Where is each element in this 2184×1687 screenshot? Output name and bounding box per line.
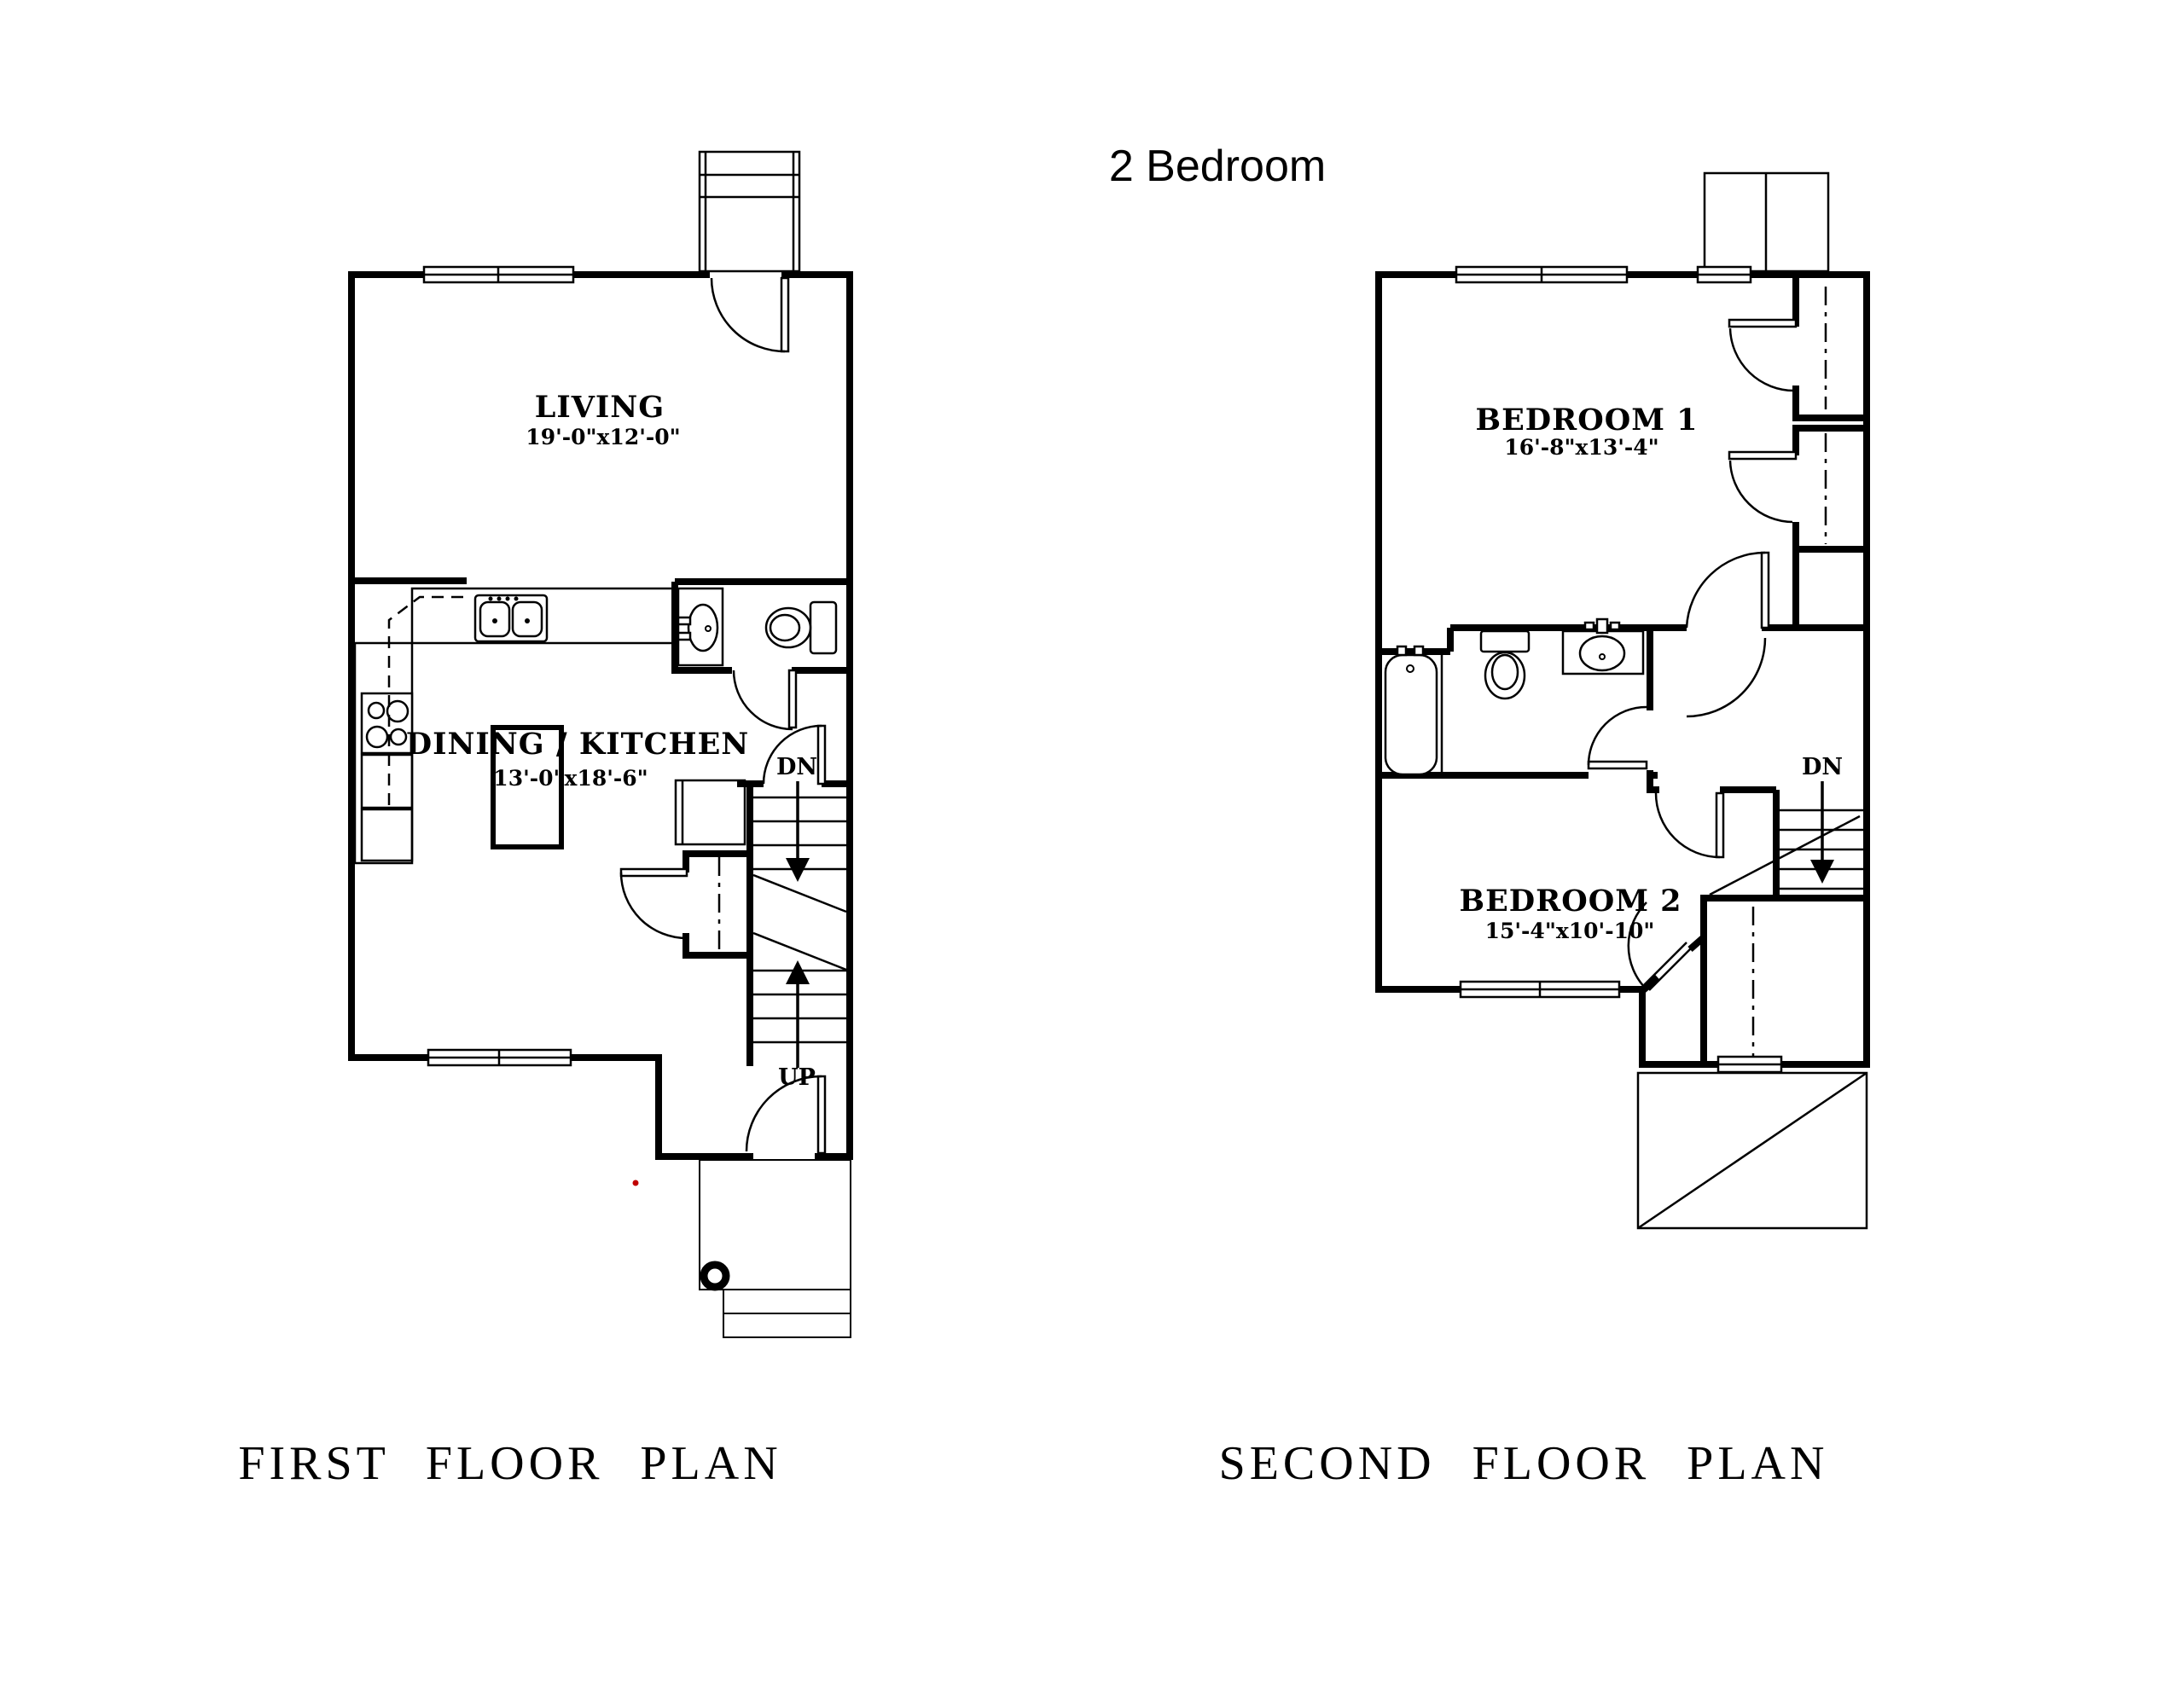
bedroom1-door-leaf: [1762, 553, 1769, 628]
base-cabinet: [362, 809, 412, 861]
roof-over-entry: [1705, 173, 1828, 271]
pantry-cabinet: [676, 780, 745, 844]
living-room-dims: 19'-0"x12'-0": [526, 425, 680, 449]
bedroom1-dims: 16'-8"x13'-4": [1504, 435, 1658, 460]
bedroom2-dims: 15'-4"x10'-10": [1485, 919, 1655, 943]
powder-door-leaf: [789, 670, 796, 728]
living-room-label: LIVING: [535, 390, 665, 425]
first-floor-title: FIRST FLOOR PLAN: [238, 1437, 781, 1490]
bathtub-icon: [1385, 646, 1437, 774]
first-floor-windows: [424, 267, 573, 1065]
stair-down-arrow: [786, 781, 810, 882]
front-stoop: [700, 152, 799, 271]
hall-door-leaf: [818, 726, 825, 784]
closet-rods: [1753, 287, 1826, 1058]
closet-door-leaf: [621, 869, 687, 876]
sheet-title: 2 Bedroom: [1109, 142, 1326, 191]
bathroom-door-leaf: [1589, 762, 1647, 768]
bedroom1-door-swing: [1687, 553, 1765, 628]
rear-porch: [700, 1160, 851, 1337]
closet-door-swing: [621, 872, 687, 938]
refrigerator-icon: [362, 755, 412, 808]
second-floor-bathroom: [1385, 619, 1643, 774]
range-icon: [362, 693, 412, 753]
closet1-door-leaf: [1729, 320, 1796, 327]
stair-up-arrow: [786, 960, 810, 1068]
closet1-door-swing: [1730, 328, 1794, 391]
first-floor-interior-walls: [348, 581, 850, 1066]
first-floor-plan: DN UP LIVING 19'-0"x12'-0" DINING / KITC…: [238, 152, 853, 1490]
stair-treads: [753, 797, 846, 1042]
second-floor-title: SECOND FLOOR PLAN: [1219, 1437, 1829, 1490]
powder-room: [678, 588, 836, 665]
front-door-leaf: [781, 278, 788, 351]
first-floor-stairs: DN UP: [753, 754, 846, 1091]
hall-door-swing: [1687, 638, 1765, 716]
stair-dn-label: DN: [1802, 754, 1843, 780]
porch-column: [704, 1265, 726, 1287]
kitchen-sink-icon: [475, 595, 547, 641]
front-door-swing: [712, 278, 785, 351]
rear-door-leaf: [818, 1076, 825, 1153]
bedroom2-hall-door-swing: [1656, 793, 1720, 857]
roof-over-rear-porch: [1638, 1073, 1867, 1228]
stair-dn-label: DN: [776, 754, 817, 780]
powder-door-swing: [734, 670, 793, 729]
bedroom2-label: BEDROOM 2: [1460, 884, 1682, 919]
second-floor-stairs: DN: [1710, 754, 1867, 895]
bathroom-door-swing: [1589, 707, 1647, 765]
closet2-door-leaf: [1729, 452, 1796, 459]
bedroom1-label: BEDROOM 1: [1476, 403, 1699, 438]
dining-kitchen-label: DINING / KITCHEN: [406, 727, 750, 762]
floor-plan-sheet: 2 Bedroom: [0, 0, 2184, 1687]
closet2-door-swing: [1730, 461, 1792, 522]
second-floor-interior-walls: [1375, 275, 1870, 1064]
toilet-icon: [766, 602, 836, 653]
stair-up-label: UP: [778, 1064, 816, 1091]
red-marker-dot: [633, 1180, 639, 1186]
stair-break-lines: [753, 875, 846, 970]
bathroom-sink-icon: [678, 588, 723, 665]
toilet-icon: [1481, 631, 1529, 699]
dining-kitchen-dims: 13'-0"x18'-6": [493, 766, 648, 791]
stair-break-line: [1710, 816, 1860, 895]
bedroom2-hall-door-leaf: [1716, 793, 1723, 857]
second-floor-plan: DN BEDROOM 1 16'-8"x13'-4" BEDROOM 2 15'…: [1219, 173, 1870, 1490]
